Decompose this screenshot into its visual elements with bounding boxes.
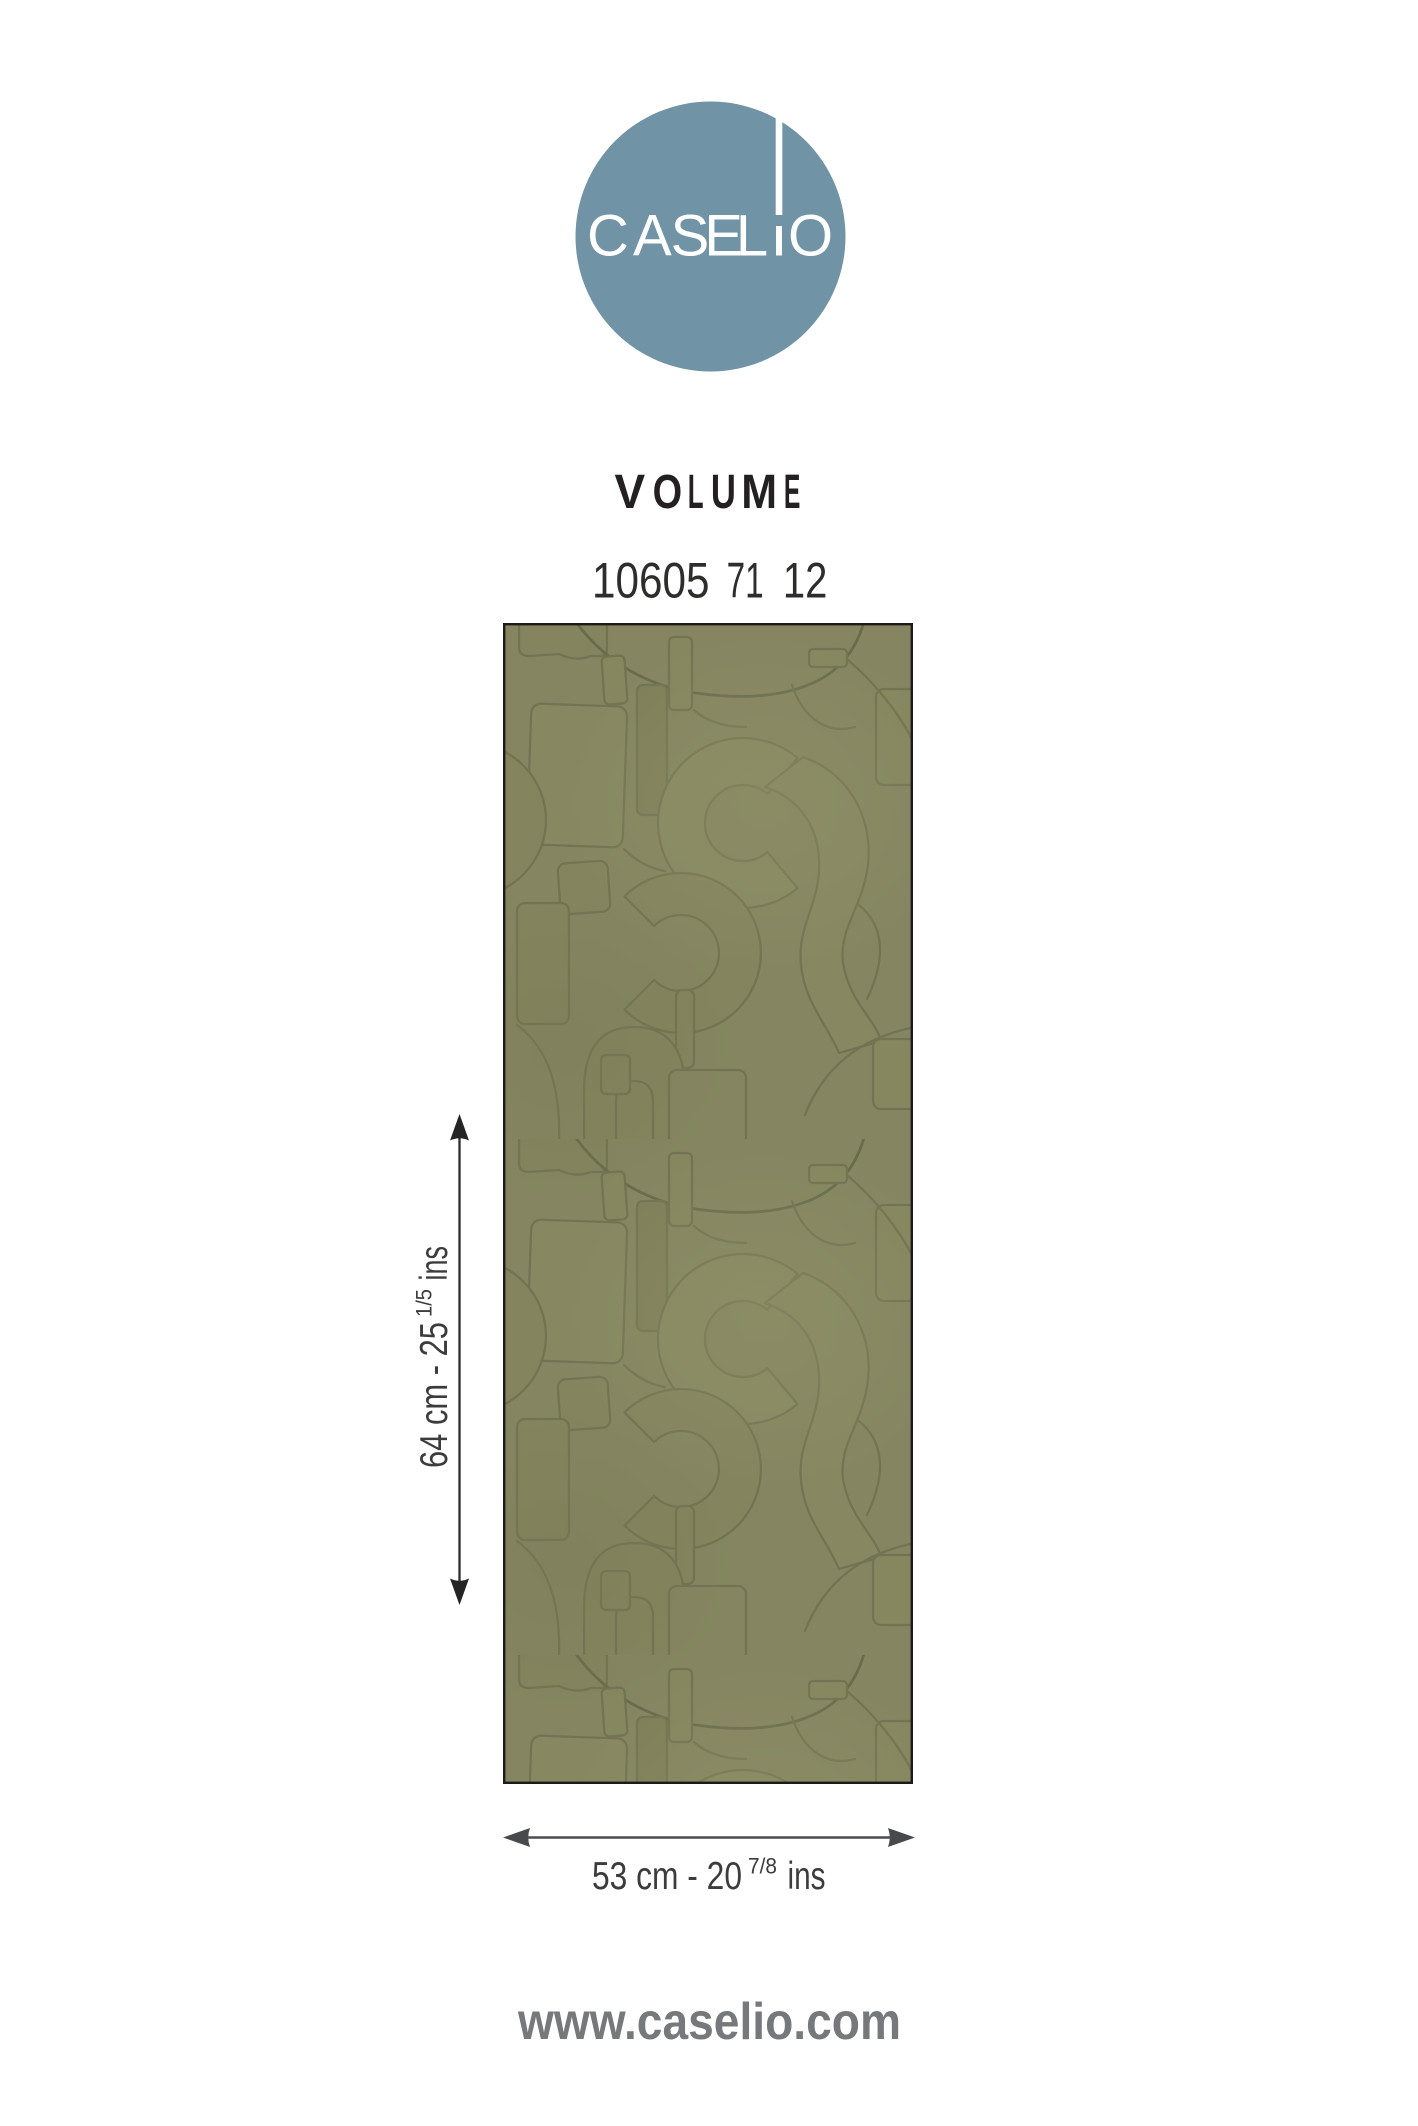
svg-text:64 cm - 25: 64 cm - 25	[413, 1322, 456, 1468]
svg-text:L: L	[736, 204, 768, 269]
svg-text:ins: ins	[413, 1246, 456, 1281]
svg-text:V: V	[615, 466, 646, 519]
svg-text:E: E	[784, 466, 801, 519]
svg-text:L: L	[688, 466, 704, 519]
svg-text:1/5: 1/5	[411, 1289, 436, 1317]
svg-text:O: O	[788, 204, 833, 269]
svg-text:www.caselio.com: www.caselio.com	[517, 1993, 901, 2051]
svg-text:10605: 10605	[592, 553, 710, 609]
svg-text:U: U	[711, 466, 736, 519]
svg-text:53 cm - 20: 53 cm - 20	[592, 1855, 742, 1898]
svg-text:12: 12	[783, 553, 828, 609]
svg-text:O: O	[653, 466, 683, 519]
svg-text:A: A	[633, 204, 672, 269]
svg-text:M: M	[741, 466, 777, 519]
svg-text:C: C	[587, 204, 629, 269]
svg-text:7/8: 7/8	[748, 1853, 777, 1878]
svg-text:ins: ins	[788, 1855, 826, 1898]
svg-text:71: 71	[727, 553, 764, 609]
